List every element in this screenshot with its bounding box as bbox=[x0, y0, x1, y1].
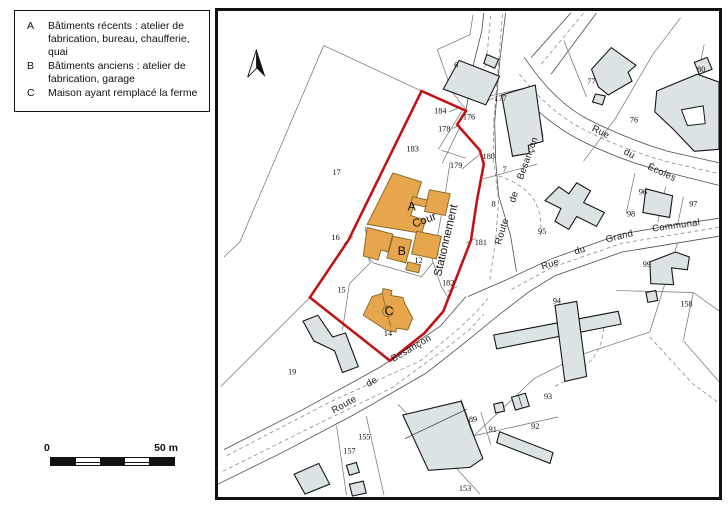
street-name-label: Route bbox=[330, 394, 359, 417]
parcel-number-label: 92 bbox=[531, 422, 539, 431]
parcel-number-label: 89 bbox=[469, 415, 477, 424]
building-letter-label: B bbox=[398, 244, 406, 258]
legend-box: A Bâtiments récents : atelier de fabrica… bbox=[14, 10, 210, 112]
street-name-label: Rue bbox=[540, 257, 561, 273]
scale-end-label: 50 m bbox=[154, 442, 178, 454]
street-name-label: Communal bbox=[652, 217, 701, 235]
parcel-number-label: 178 bbox=[438, 125, 450, 134]
scale-bar: 0 50 m bbox=[44, 442, 178, 466]
parcel-number-label: 8 bbox=[492, 200, 496, 209]
legend-text: Bâtiments récents : atelier de fabricati… bbox=[48, 20, 203, 59]
street-name-label: du bbox=[573, 244, 587, 258]
legend-item-c: C Maison ayant remplacé la ferme bbox=[27, 87, 203, 100]
street-name-label: Écoles bbox=[646, 161, 678, 184]
parcel-number-label: 77 bbox=[587, 77, 595, 86]
parcel-number-label: 93 bbox=[544, 392, 552, 401]
parcel-number-labels: 6171831841781761791801777877768096979816… bbox=[288, 60, 705, 493]
parcel-number-label: 80 bbox=[697, 65, 705, 74]
parcel-number-label: 179 bbox=[450, 161, 462, 170]
parcel-number-label: 153 bbox=[459, 484, 471, 493]
north-arrow-icon bbox=[248, 50, 266, 78]
parcel-number-label: 96 bbox=[639, 188, 647, 197]
parcel-number-label: 157 bbox=[343, 447, 355, 456]
legend-text: Maison ayant remplacé la ferme bbox=[48, 87, 203, 100]
parcel-number-label: 155 bbox=[358, 433, 370, 442]
parcel-number-label: 99 bbox=[643, 260, 651, 269]
legend-text: Bâtiments anciens : atelier de fabricati… bbox=[48, 60, 203, 86]
cadastral-map: 6171831841781761791801777877768096979816… bbox=[218, 11, 719, 497]
map-panel: 6171831841781761791801777877768096979816… bbox=[215, 8, 722, 500]
parcel-number-label: 98 bbox=[627, 209, 635, 218]
scale-midline bbox=[51, 462, 174, 463]
parcel-number-label: 184 bbox=[434, 107, 446, 116]
scale-start-label: 0 bbox=[44, 442, 50, 454]
parcel-number-label: 181 bbox=[475, 238, 487, 247]
parcel-number-label: 183 bbox=[407, 144, 419, 153]
building-letter-label: A bbox=[408, 200, 417, 214]
parcel-number-label: 6 bbox=[454, 60, 458, 69]
parcel-number-label: 91 bbox=[489, 425, 497, 434]
building-letter-label: C bbox=[384, 304, 393, 318]
parcel-number-label: 16 bbox=[331, 233, 339, 242]
parcel-number-label: 7 bbox=[503, 165, 507, 174]
street-name-label: Route bbox=[493, 217, 511, 246]
legend-letter: B bbox=[27, 60, 39, 86]
parcel-number-label: 177 bbox=[494, 94, 506, 103]
parcel-number-label: 12 bbox=[415, 256, 423, 265]
parcel-number-label: 94 bbox=[553, 296, 561, 305]
parcel-number-label: 158 bbox=[680, 299, 692, 308]
parcel-number-label: 176 bbox=[463, 113, 475, 122]
parcel-number-label: 17 bbox=[332, 168, 340, 177]
parcel-number-label: 19 bbox=[288, 368, 296, 377]
scale-bar-graphic bbox=[50, 457, 175, 466]
legend-letter: A bbox=[27, 20, 39, 59]
street-name-label: Besançon bbox=[389, 333, 433, 365]
parcel-number-label: 76 bbox=[630, 116, 638, 125]
legend-item-a: A Bâtiments récents : atelier de fabrica… bbox=[27, 20, 203, 59]
scale-bar-labels: 0 50 m bbox=[44, 442, 178, 454]
street-name-label: Grand bbox=[605, 228, 635, 245]
parcel-number-label: 15 bbox=[337, 286, 345, 295]
street-name-label: de bbox=[507, 190, 521, 204]
street-name-label: de bbox=[364, 375, 379, 390]
legend-item-b: B Bâtiments anciens : atelier de fabrica… bbox=[27, 60, 203, 86]
parcel-number-label: 180 bbox=[483, 152, 495, 161]
parcel-number-label: 97 bbox=[689, 200, 697, 209]
legend-letter: C bbox=[27, 87, 39, 100]
parcel-number-label: 182 bbox=[442, 279, 454, 288]
parcel-number-label: 14 bbox=[384, 329, 392, 338]
parcel-number-label: 95 bbox=[538, 227, 546, 236]
